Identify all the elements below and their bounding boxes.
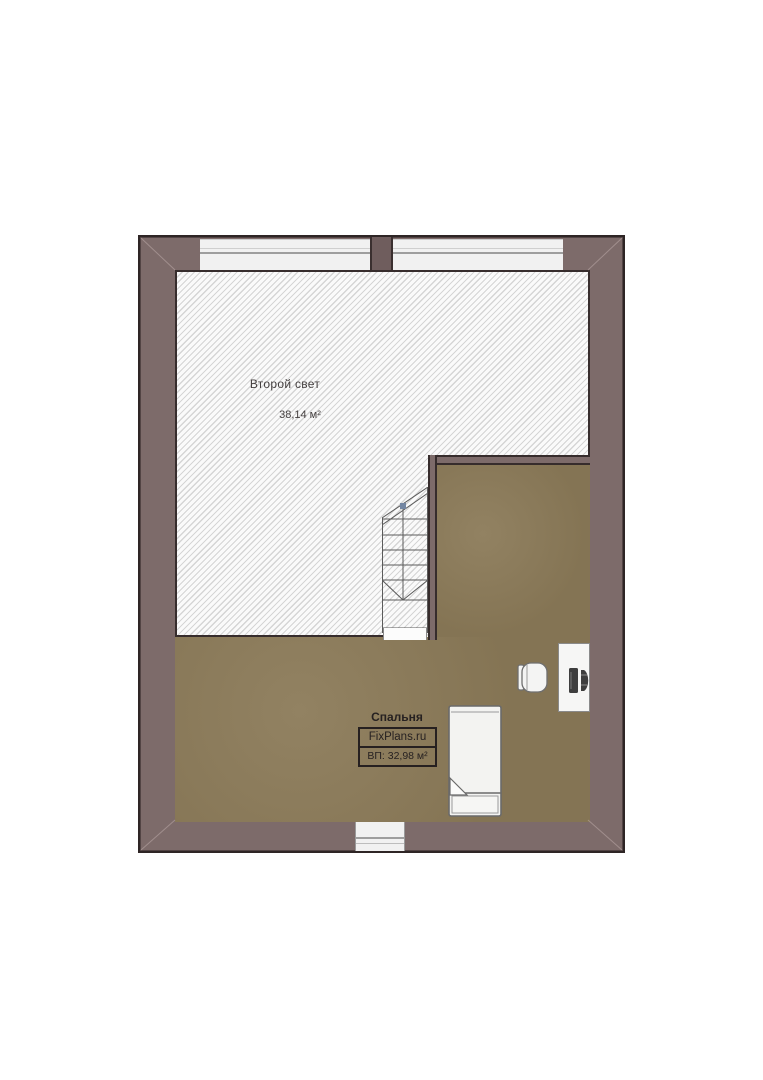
- bedroom-area-text: ВП: 32,98 м²: [360, 746, 435, 765]
- window-top-left: [200, 239, 370, 271]
- watermark-box: FixPlans.ru ВП: 32,98 м²: [358, 727, 437, 767]
- floor-plan: Второй свет 38,14 м² Спальня FixPlans.ru…: [140, 237, 623, 851]
- bedroom-floor-right: [437, 465, 590, 637]
- internal-wall-horizontal: [428, 455, 590, 465]
- window-top-right: [393, 239, 563, 271]
- window-bottom: [355, 822, 405, 851]
- stair-landing: [383, 628, 427, 640]
- watermark-text: FixPlans.ru: [360, 729, 435, 746]
- desk-chair-icon: [517, 662, 548, 693]
- computer-desk-icon: [558, 643, 590, 712]
- floor-boundary-line: [175, 635, 383, 637]
- wall-pillar: [370, 237, 393, 270]
- floor-plan-page: Второй свет 38,14 м² Спальня FixPlans.ru…: [0, 0, 763, 1080]
- stair-direction-marker: [400, 503, 406, 509]
- room-label-bedroom: Спальня: [332, 710, 462, 724]
- staircase-icon: [382, 487, 428, 633]
- room-area-second-light: 38,14 м²: [235, 409, 365, 421]
- internal-wall-vertical: [428, 455, 437, 640]
- room-label-second-light: Второй свет: [220, 377, 350, 391]
